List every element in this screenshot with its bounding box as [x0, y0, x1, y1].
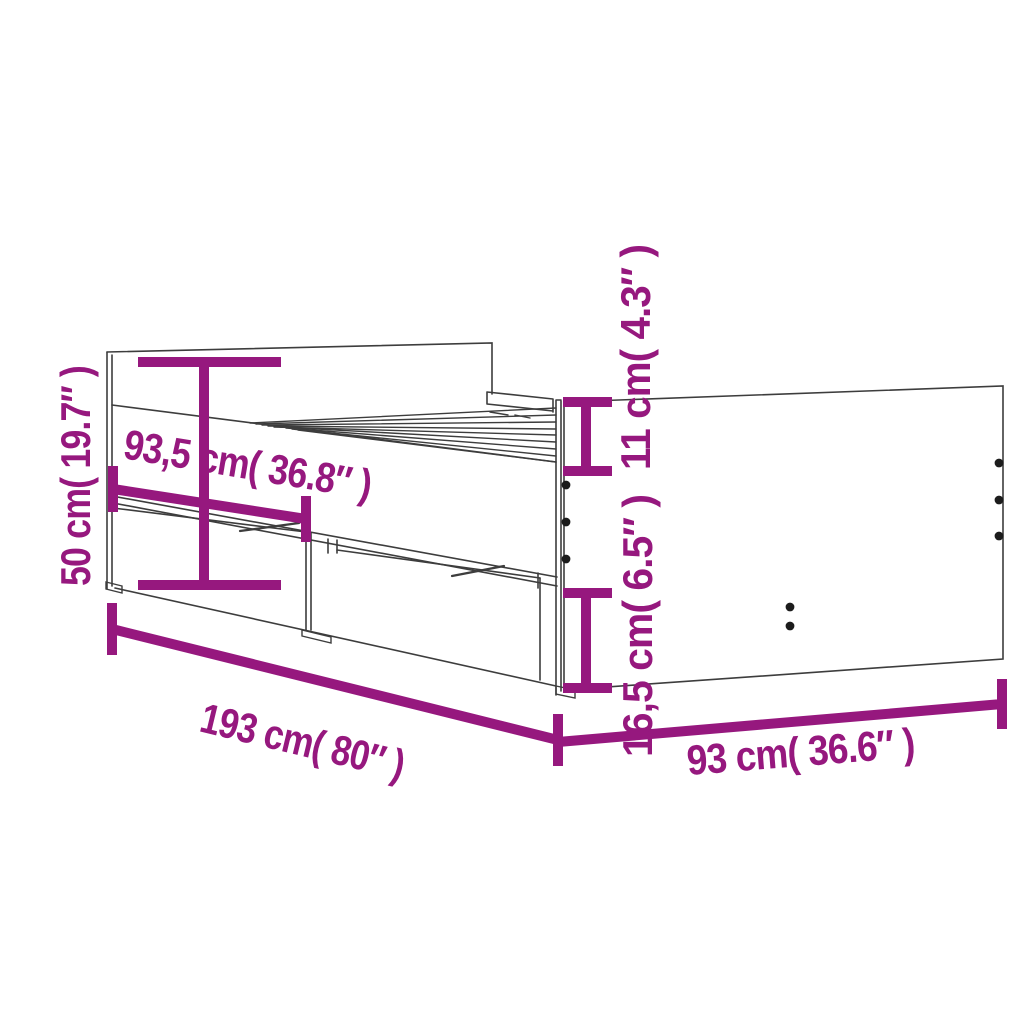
drawer-fronts	[113, 508, 556, 686]
dimension-label-total-length: 193 cm( 80″ )	[196, 694, 409, 788]
corner-post	[556, 400, 561, 695]
dimension-label-top-rail-height: 11 cm( 4.3″ )	[612, 245, 659, 470]
bed-frame-drawing	[106, 343, 1003, 698]
dimension-label-total-height: 50 cm( 19.7″ )	[52, 366, 99, 586]
bed-frame-dimension-diagram: 50 cm( 19.7″ ) 93,5 cm( 36.8″ ) 11 cm( 4…	[0, 0, 1024, 1024]
dimension-beam-top-rail-height	[563, 402, 612, 471]
far-side-rail	[487, 392, 553, 418]
dimension-beam-drawer-height	[563, 593, 612, 688]
dimension-label-drawer-height: 16,5 cm( 6.5″ )	[614, 495, 661, 757]
diagram-canvas: 50 cm( 19.7″ ) 93,5 cm( 36.8″ ) 11 cm( 4…	[0, 0, 1024, 1024]
